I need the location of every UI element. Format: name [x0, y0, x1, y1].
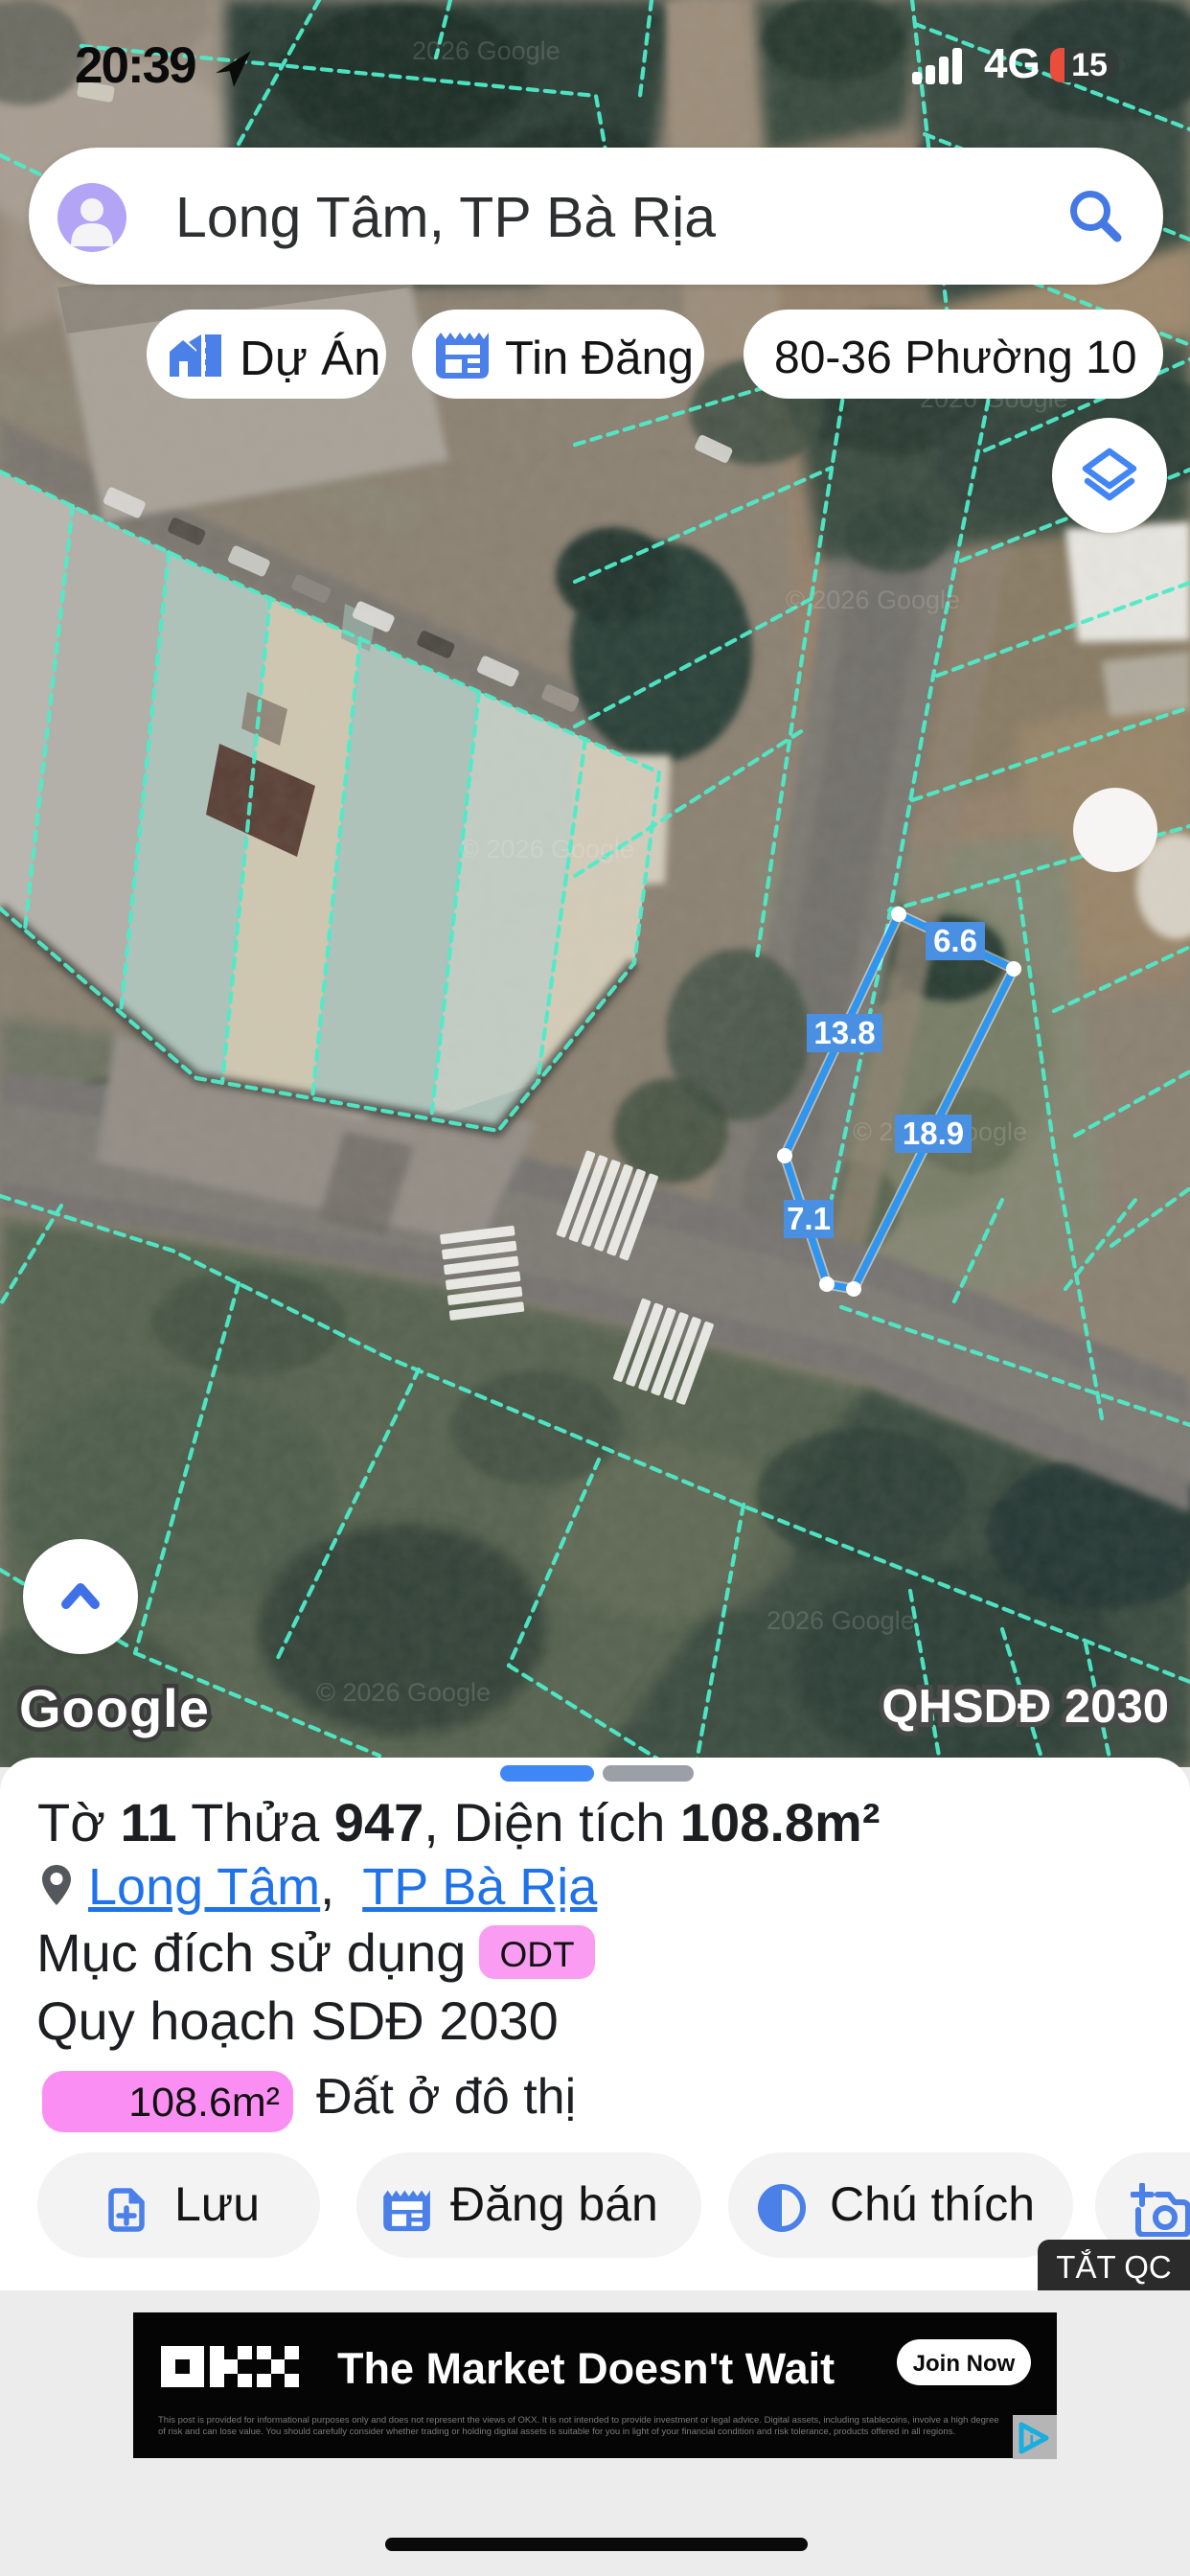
svg-text:Google: Google	[19, 1678, 210, 1738]
svg-text:© 2026 Google: © 2026 Google	[316, 1678, 491, 1707]
svg-text:i: i	[1029, 2429, 1035, 2450]
svg-text:13.8: 13.8	[813, 1015, 875, 1050]
svg-text:© 2026 Google: © 2026 Google	[786, 586, 960, 614]
svg-text:18.9: 18.9	[903, 1115, 964, 1151]
svg-text:2026 Google: 2026 Google	[412, 36, 561, 65]
svg-text:2026 Google: 2026 Google	[767, 1606, 915, 1635]
svg-text:7.1: 7.1	[787, 1201, 831, 1236]
svg-text:QHSDĐ 2030: QHSDĐ 2030	[881, 1681, 1169, 1733]
svg-text:© 2026 Google: © 2026 Google	[460, 835, 634, 863]
svg-text:6.6: 6.6	[933, 923, 977, 958]
